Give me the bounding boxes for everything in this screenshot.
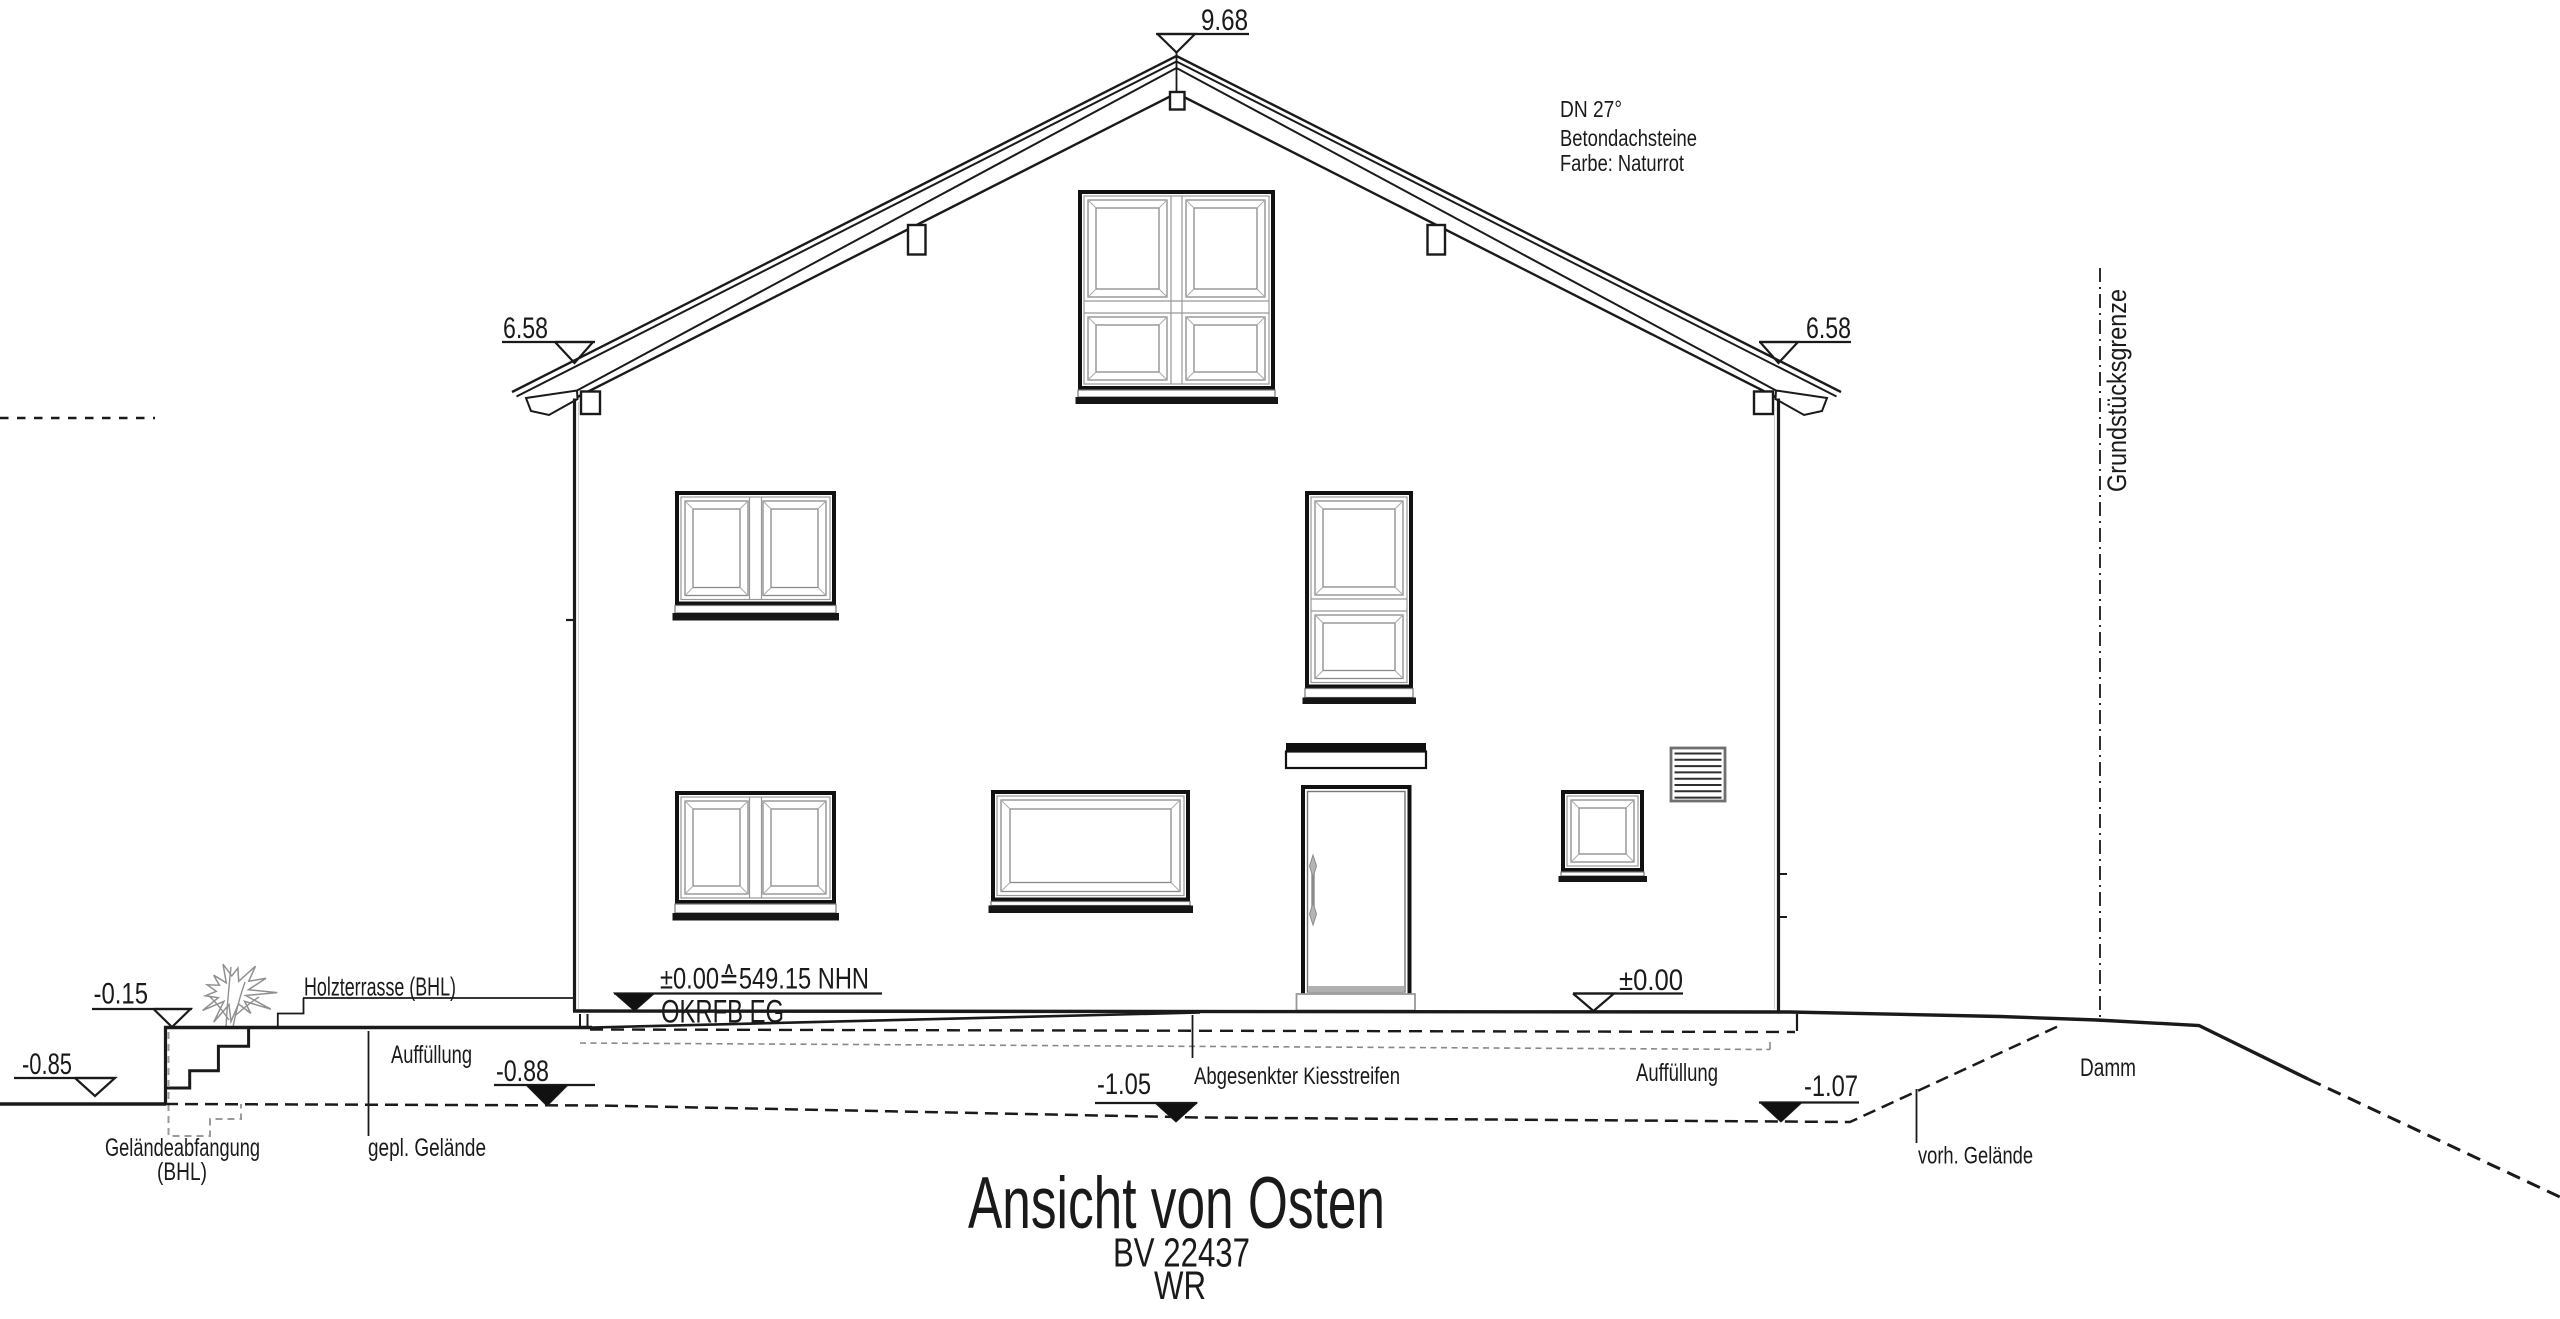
svg-text:gepl. Gelände: gepl. Gelände xyxy=(368,1134,486,1162)
svg-text:6.58: 6.58 xyxy=(1806,312,1851,345)
svg-text:(BHL): (BHL) xyxy=(157,1158,207,1186)
svg-text:Auffüllung: Auffüllung xyxy=(391,1041,472,1069)
svg-text:-1.07: -1.07 xyxy=(1804,1070,1858,1103)
svg-text:OKRFB EG: OKRFB EG xyxy=(661,994,784,1030)
svg-text:Damm: Damm xyxy=(2080,1054,2136,1082)
svg-text:vorh. Gelände: vorh. Gelände xyxy=(1918,1143,2033,1170)
svg-text:Auffüllung: Auffüllung xyxy=(1636,1059,1718,1087)
svg-text:Farbe: Naturrot: Farbe: Naturrot xyxy=(1560,150,1684,176)
svg-text:9.68: 9.68 xyxy=(1201,4,1248,37)
svg-text:WR: WR xyxy=(1154,1264,1206,1308)
svg-text:6.58: 6.58 xyxy=(503,312,548,345)
svg-text:-0.88: -0.88 xyxy=(496,1055,549,1088)
svg-text:-1.05: -1.05 xyxy=(1097,1068,1151,1101)
svg-text:Abgesenkter Kiesstreifen: Abgesenkter Kiesstreifen xyxy=(1194,1063,1400,1090)
svg-text:±0.00≙549.15 NHN: ±0.00≙549.15 NHN xyxy=(660,963,869,996)
svg-text:DN 27°: DN 27° xyxy=(1560,96,1622,122)
svg-text:Holzterrasse (BHL): Holzterrasse (BHL) xyxy=(304,972,456,1002)
svg-text:±0.00: ±0.00 xyxy=(1619,964,1683,997)
svg-text:Grundstücksgrenze: Grundstücksgrenze xyxy=(2102,289,2132,492)
svg-text:Betondachsteine: Betondachsteine xyxy=(1560,125,1697,151)
svg-text:-0.15: -0.15 xyxy=(94,978,149,1011)
svg-text:-0.85: -0.85 xyxy=(22,1048,72,1081)
